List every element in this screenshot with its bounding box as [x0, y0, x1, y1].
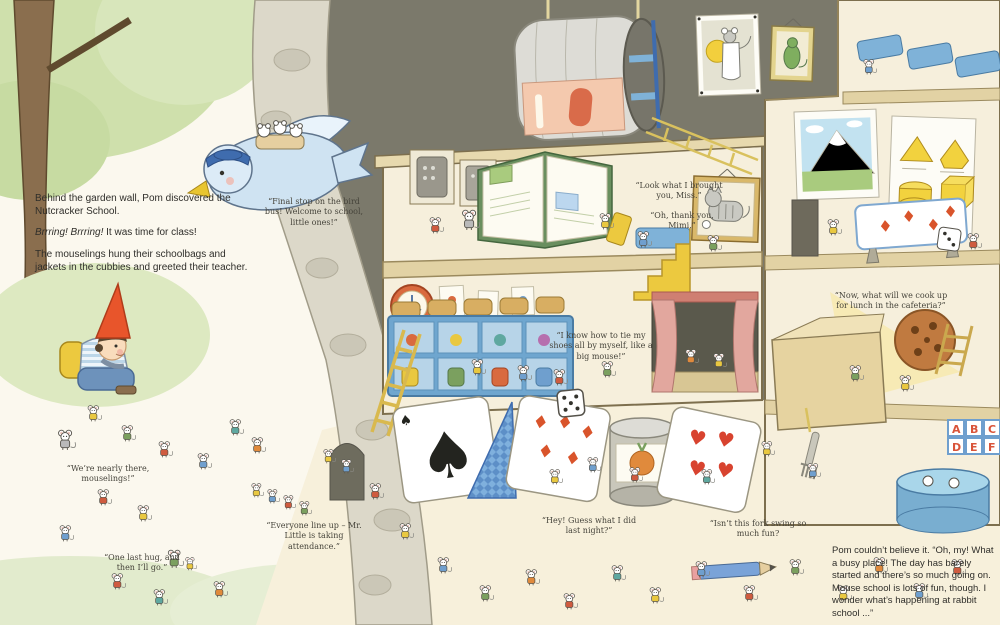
- speech-cafeteria: “Now, what will we cook up for lunch in …: [833, 291, 949, 312]
- green-mouse-frame: [770, 18, 814, 81]
- svg-text:♦: ♦: [943, 202, 959, 222]
- cardboard-box: [772, 332, 886, 430]
- speech-line-up: “Everyone line up – Mr. Little is taking…: [258, 521, 370, 552]
- intro-narration: Behind the garden wall, Pom discovered t…: [35, 192, 251, 282]
- speech-shoes: “I know how to tie my shoes all by mysel…: [548, 331, 654, 362]
- speech-hug: “One last hug, and then I’ll go.”: [98, 553, 186, 574]
- speech-guess: “Hey! Guess what I did last night?”: [540, 516, 638, 537]
- block-letter: E: [970, 441, 978, 454]
- book-spread: ♦ ♦ ♦ ♦: [0, 0, 1000, 625]
- block-letter: D: [952, 441, 961, 454]
- speech-bird-bus: “Final stop on the bird bus! Welcome to …: [262, 197, 366, 228]
- intro-paragraph-3: The mouselings hung their schoolbags and…: [35, 248, 251, 274]
- outro-narration: Pom couldn’t believe it. “Oh, my! What a…: [832, 545, 994, 620]
- mouse-poster: [696, 14, 761, 96]
- die: [937, 227, 962, 252]
- letter-blocks: A B C D E F: [948, 420, 1000, 454]
- round-pool: [897, 469, 989, 533]
- speech-nearly-there: “We’re nearly there, mouselings!”: [55, 464, 161, 485]
- svg-text:♠: ♠: [414, 416, 481, 497]
- block-letter: A: [952, 423, 961, 436]
- speech-thanks: “Oh, thank you, Mimi.”: [636, 211, 728, 232]
- svg-text:♦: ♦: [878, 216, 894, 236]
- landscape-poster: [794, 109, 879, 200]
- open-book: [478, 152, 612, 248]
- svg-text:♦: ♦: [901, 207, 917, 227]
- intro-paragraph-2: Brrring! Brrring! It was time for class!: [35, 226, 251, 239]
- intro-paragraph-2-rest: It was time for class!: [103, 227, 196, 238]
- block-letter: F: [988, 441, 996, 454]
- intro-paragraph-1: Behind the garden wall, Pom discovered t…: [35, 192, 251, 218]
- speech-fork-swing: “Isn’t this fork swing so much fun?: [700, 519, 816, 540]
- svg-text:♠: ♠: [399, 412, 414, 430]
- giant-cookie: [895, 310, 955, 370]
- block-letter: C: [988, 423, 996, 436]
- intro-bell-sound: Brrring! Brrring!: [35, 227, 103, 238]
- hearts-card: ♥ ♥ ♥ ♥: [655, 405, 762, 514]
- framed-gadget: [410, 150, 454, 204]
- speech-gift: “Look what I brought you, Miss.”: [628, 181, 730, 202]
- puppet-stage: [652, 292, 758, 392]
- block-letter: B: [970, 423, 978, 436]
- doorway: [792, 200, 818, 256]
- die: [557, 389, 586, 418]
- illustration: ♦ ♦ ♦ ♦: [0, 0, 1000, 625]
- shoe: [116, 386, 136, 394]
